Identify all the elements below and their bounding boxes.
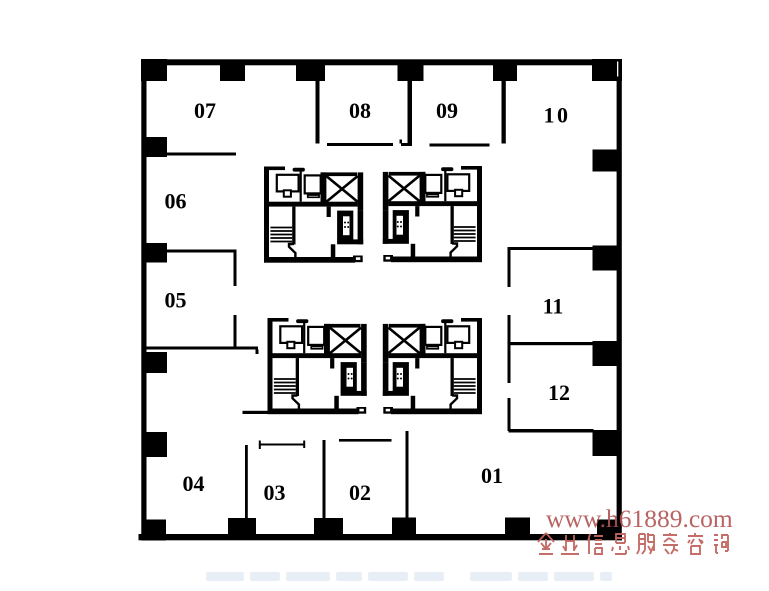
svg-text:11: 11 [543,294,564,319]
svg-text:09: 09 [436,98,458,123]
svg-text:08: 08 [349,98,371,123]
svg-text:03: 03 [264,480,286,505]
svg-text:01: 01 [481,463,503,488]
svg-text:10: 10 [544,103,571,128]
svg-text:05: 05 [165,288,187,313]
svg-text:02: 02 [349,480,371,505]
svg-text:06: 06 [165,189,187,214]
svg-text:www.h61889.com: www.h61889.com [546,504,733,533]
svg-text:12: 12 [548,380,570,405]
svg-text:04: 04 [183,471,205,496]
svg-text:07: 07 [194,98,216,123]
